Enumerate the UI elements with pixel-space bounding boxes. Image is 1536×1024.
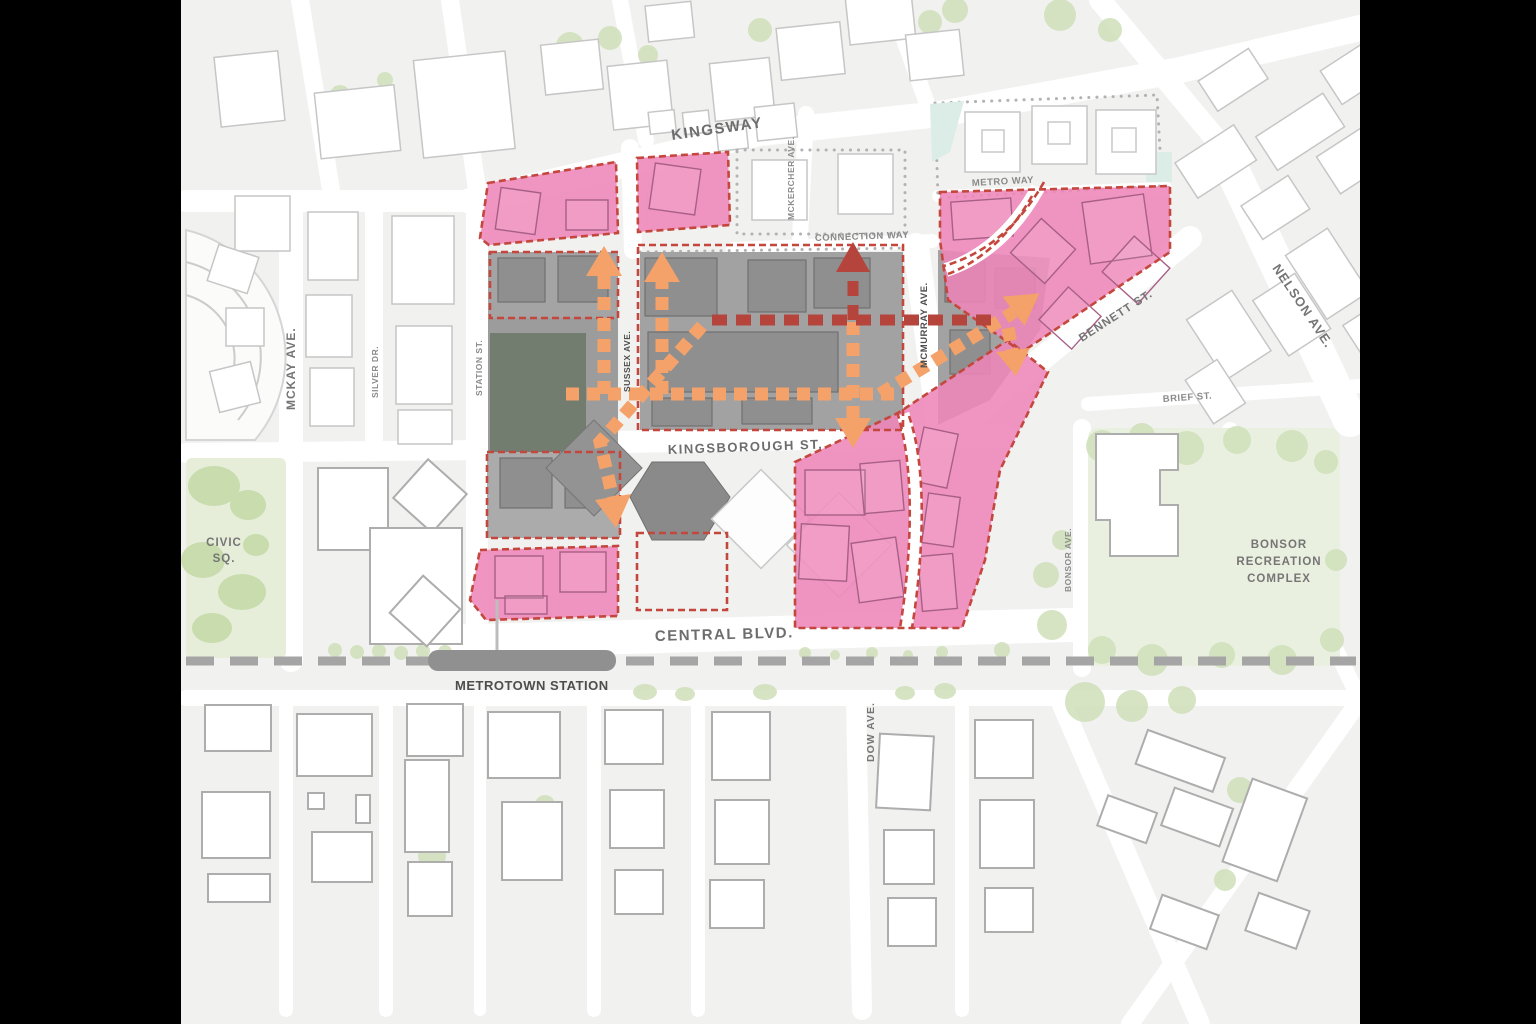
metrotown-station-platform xyxy=(428,650,616,671)
screenshot-stage: KINGSWAY MCKAY AVE. SILVER DR. STATION S… xyxy=(0,0,1536,1024)
right-black-bar xyxy=(1360,0,1536,1024)
label-sussex: SUSSEX AVE. xyxy=(622,331,632,392)
street-sussex-north xyxy=(630,148,633,250)
label-civic-1: CIVIC xyxy=(206,537,242,549)
label-mcmurray: MCMURRAY AVE. xyxy=(919,282,930,368)
label-bonsor-1: BONSOR xyxy=(1251,539,1307,551)
label-mckercher: MCKERCHER AVE. xyxy=(786,136,796,220)
label-silver: SILVER DR. xyxy=(370,346,380,398)
planning-map: KINGSWAY MCKAY AVE. SILVER DR. STATION S… xyxy=(0,0,1536,1024)
label-station-st: STATION ST. xyxy=(474,340,484,396)
street-dow xyxy=(856,700,862,1010)
label-mckay: MCKAY AVE. xyxy=(284,327,298,410)
label-central-blvd: CENTRAL BLVD. xyxy=(655,624,794,645)
label-bonsor-ave: BONSOR AVE. xyxy=(1063,528,1073,592)
label-bonsor-2: RECREATION xyxy=(1236,556,1321,568)
label-dow: DOW AVE. xyxy=(865,702,877,762)
label-metrotown-station: METROTOWN STATION xyxy=(455,678,609,693)
label-civic-2: SQ. xyxy=(213,553,236,565)
left-black-bar xyxy=(0,0,181,1024)
label-bonsor-3: COMPLEX xyxy=(1247,573,1311,585)
